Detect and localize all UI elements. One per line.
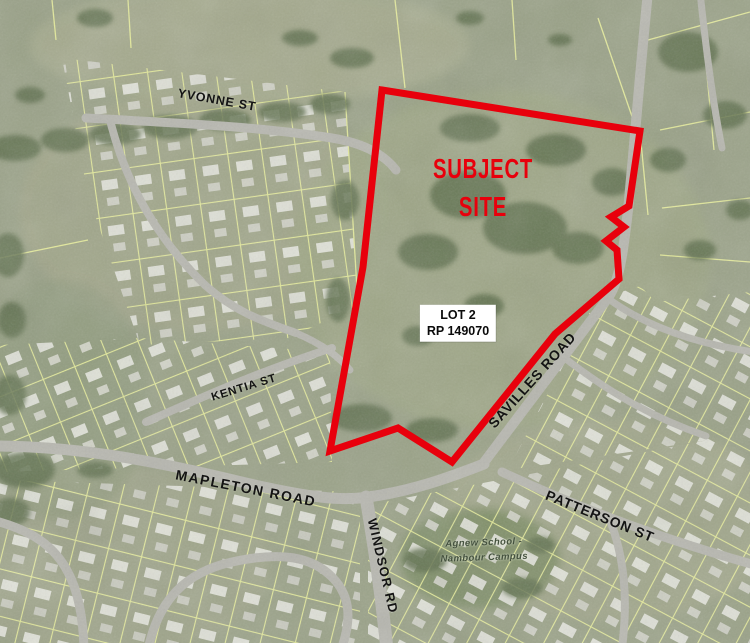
aerial-map: SUBJECT SITE LOT 2 RP 149070 YVONNE ST K…: [0, 0, 750, 643]
subject-site-label-line1: SUBJECT: [433, 150, 533, 188]
school-label-line2: Nambour Campus: [440, 549, 528, 567]
plan-number: RP 149070: [427, 323, 489, 339]
school-label: Agnew School - Nambour Campus: [440, 535, 528, 567]
lot-number: LOT 2: [427, 307, 489, 323]
lot-plan-label: LOT 2 RP 149070: [420, 305, 496, 342]
subject-site-label-line2: SITE: [433, 188, 533, 226]
subject-site-label: SUBJECT SITE: [433, 150, 533, 226]
